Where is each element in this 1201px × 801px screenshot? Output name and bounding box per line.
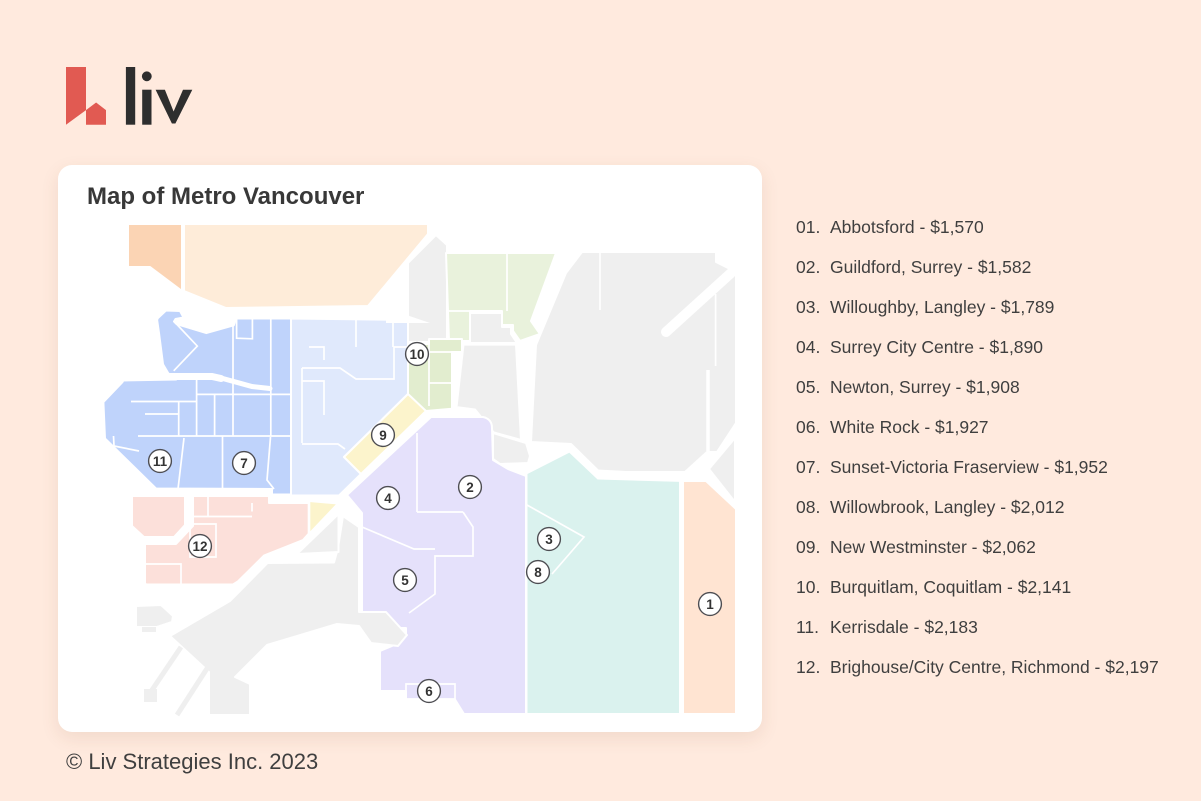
svg-text:9: 9 <box>379 428 387 443</box>
svg-text:1: 1 <box>706 597 714 612</box>
svg-text:6: 6 <box>425 684 433 699</box>
svg-text:11: 11 <box>153 454 168 469</box>
svg-text:2: 2 <box>466 480 474 495</box>
svg-text:5: 5 <box>401 573 409 588</box>
svg-text:4: 4 <box>384 491 392 506</box>
svg-text:7: 7 <box>240 456 248 471</box>
svg-text:8: 8 <box>534 565 542 580</box>
svg-text:3: 3 <box>545 532 553 547</box>
svg-text:10: 10 <box>409 347 424 362</box>
svg-text:12: 12 <box>192 539 207 554</box>
